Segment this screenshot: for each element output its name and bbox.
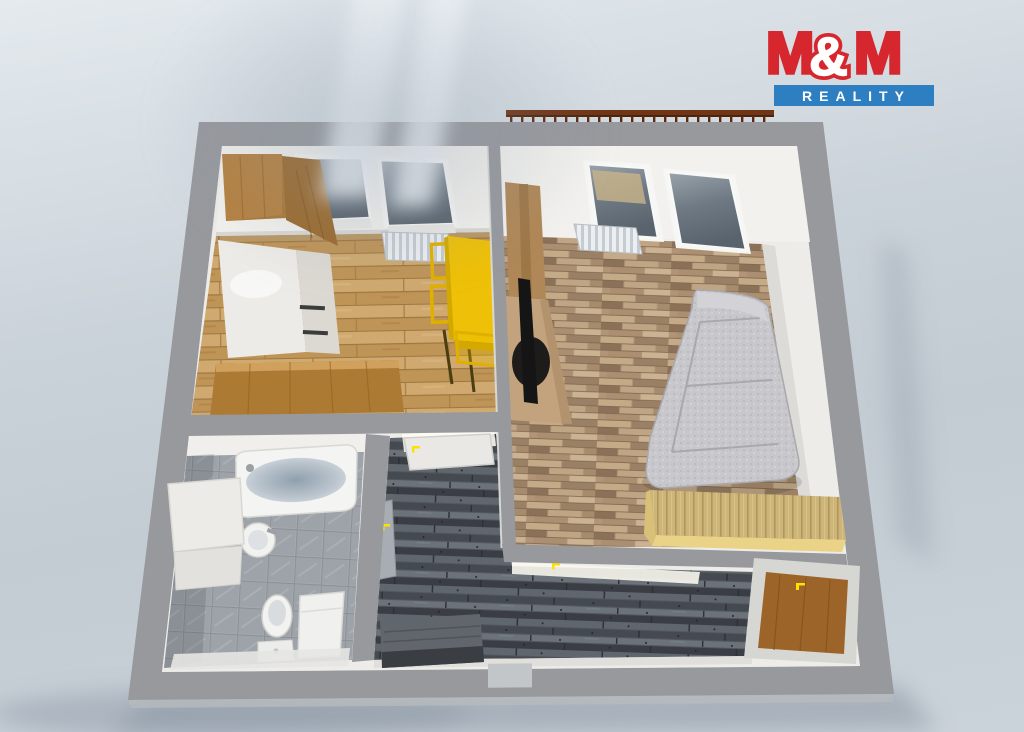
bathroom	[164, 434, 366, 670]
kitchen-wood-counter	[210, 360, 404, 416]
wood-chest	[644, 490, 846, 552]
entry	[744, 558, 860, 664]
logo-m-right: M	[854, 22, 902, 84]
threshold-notch	[488, 663, 532, 687]
logo-reality-text: REALITY	[802, 88, 911, 104]
bathroom-door-panel	[168, 478, 244, 590]
logo-ampersand: &	[809, 27, 848, 84]
logo-reality-bar: REALITY	[774, 85, 934, 106]
logo-m-left: M	[766, 22, 814, 84]
bathtub-tap	[246, 464, 254, 472]
scene: M M & & REALITY	[0, 0, 1024, 732]
logo-mm-text: M M & &	[766, 22, 916, 84]
ambient-shadow-band	[150, 0, 610, 290]
kitchen-south-wall	[187, 412, 500, 436]
bathtub	[236, 445, 357, 517]
brand-logo: M M & & REALITY	[766, 22, 956, 106]
shoe-bench	[380, 614, 484, 668]
kitchen-door-leaf	[404, 434, 494, 470]
dining-stool	[456, 332, 498, 366]
washing-machine	[298, 592, 344, 658]
